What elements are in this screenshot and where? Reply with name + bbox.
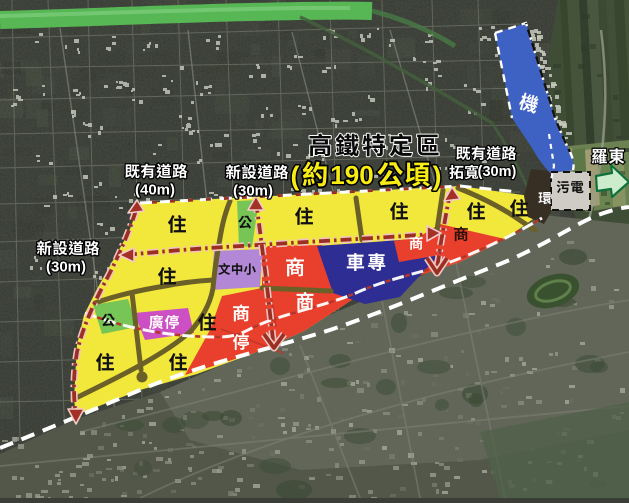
svg-text:(40m): (40m) [135,182,175,199]
svg-text:(30m): (30m) [233,183,273,200]
svg-text:(: ( [291,161,300,191]
svg-text:(30m): (30m) [478,164,517,180]
svg-text:(30m): (30m) [46,259,86,276]
svg-text:): ) [433,161,442,191]
svg-text:190: 190 [330,160,373,190]
